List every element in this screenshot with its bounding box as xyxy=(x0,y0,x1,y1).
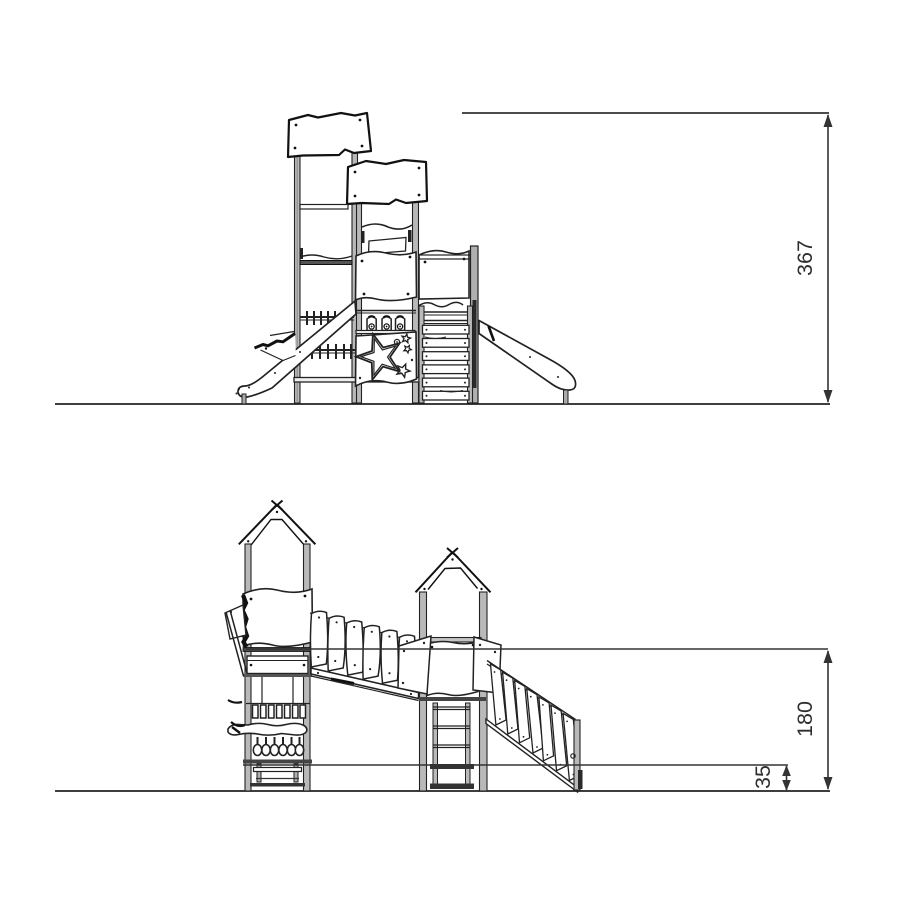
svg-text:367: 367 xyxy=(793,240,817,276)
svg-text:35: 35 xyxy=(751,765,775,789)
svg-text:180: 180 xyxy=(793,701,817,737)
